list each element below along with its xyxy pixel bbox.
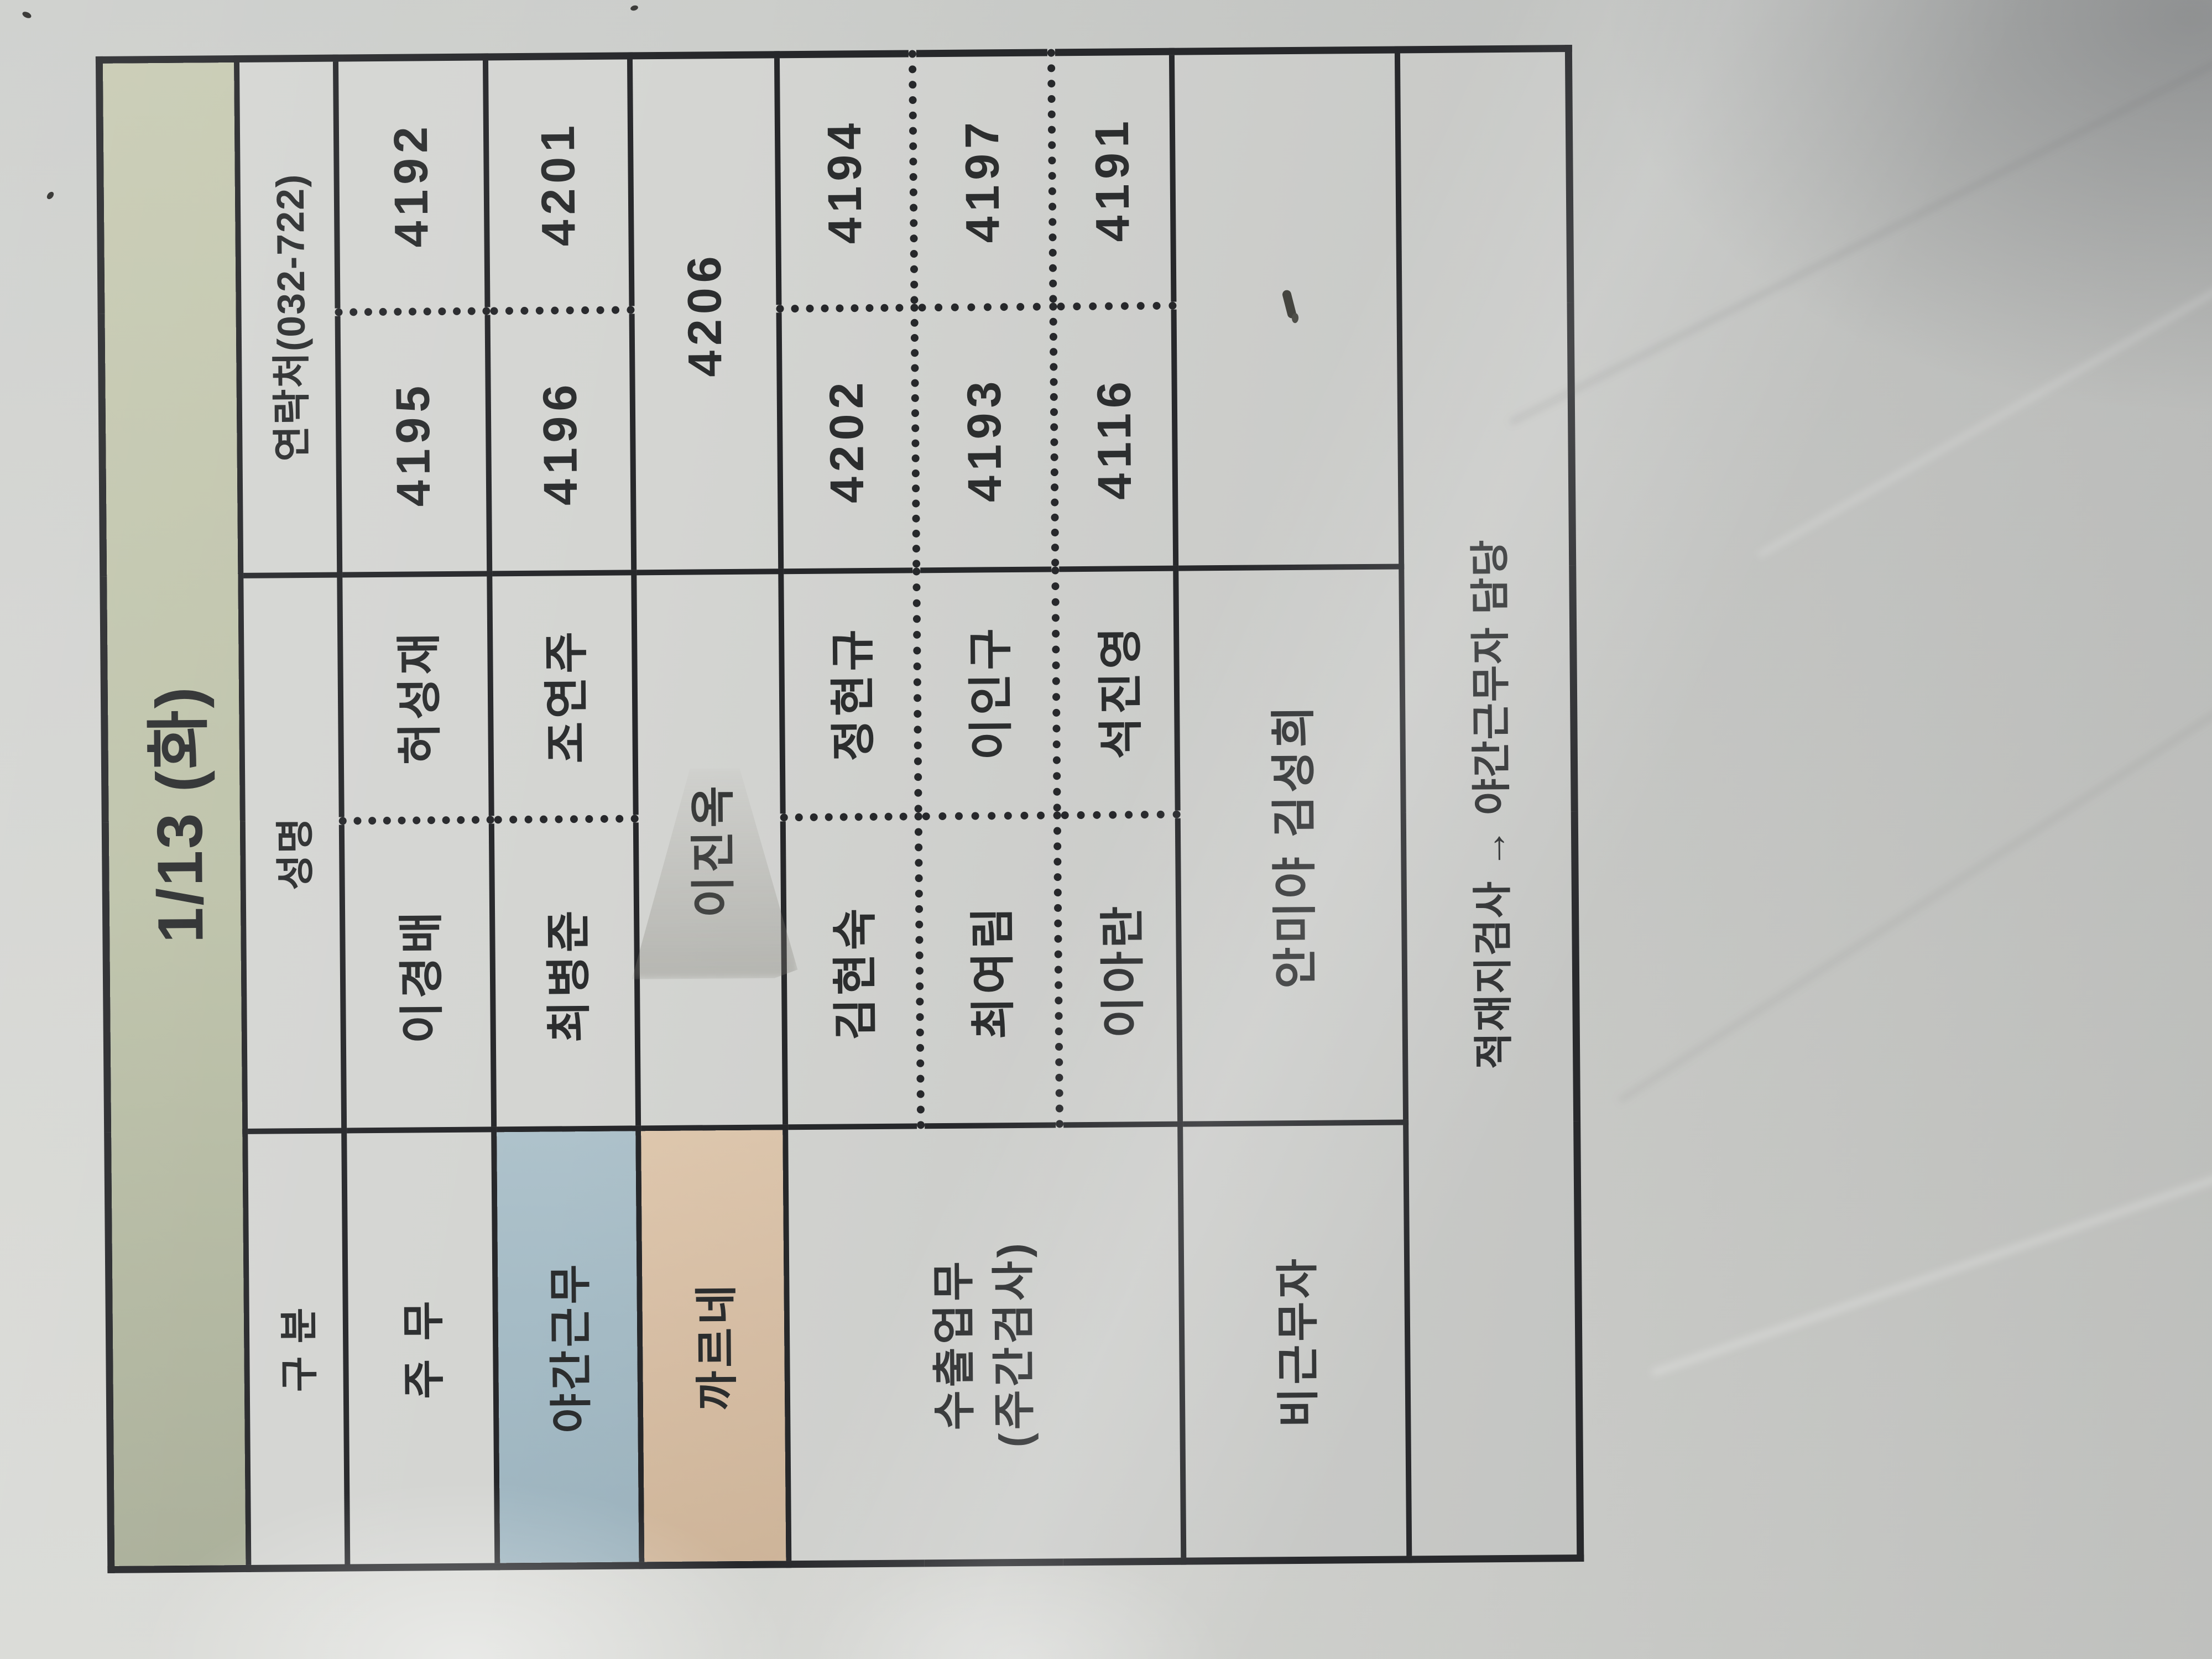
- jumu-num1: 4195: [337, 311, 489, 575]
- off-duty-label: 비근무자: [1180, 1123, 1409, 1561]
- paper-crease: [1619, 617, 2212, 1103]
- date-title-cell: 1/13 (화): [99, 59, 248, 1570]
- export3-name1: 이아란: [1057, 815, 1180, 1125]
- night-name2: 조연주: [489, 573, 635, 820]
- export1-name1: 김현숙: [782, 817, 920, 1128]
- export1-num2: 4194: [776, 54, 914, 309]
- row-note: 적재지검사 → 야간근무자 담당: [1397, 49, 1580, 1559]
- date-title: 1/13 (화): [143, 685, 217, 943]
- export2-num2: 4197: [912, 53, 1053, 308]
- export3-num1: 4116: [1053, 306, 1176, 570]
- roster-photo: 1/13 (화) 구 분 성명 연락처(032-722) 주 무 이경배 허성재…: [0, 0, 2212, 1659]
- duty-roster-table: 1/13 (화) 구 분 성명 연락처(032-722) 주 무 이경배 허성재…: [96, 45, 1584, 1573]
- paper-crease-highlight: [1757, 222, 2212, 557]
- colhead-contact: 연락처(032-722): [236, 58, 339, 576]
- row-carnet: 까르네 이진옥 4206: [629, 55, 788, 1566]
- rotated-sheet: 1/13 (화) 구 분 성명 연락처(032-722) 주 무 이경배 허성재…: [96, 52, 1577, 1573]
- row-night-duty: 야간근무 최병준 조연주 4196 4201: [485, 56, 641, 1567]
- row-export-1: 수출업무 (주간검사) 김현숙 정현규 4202 4194: [776, 54, 924, 1564]
- note-text: 적재지검사 → 야간근무자 담당: [1468, 539, 1517, 1070]
- colhead-name: 성명: [241, 575, 344, 1131]
- colhead-category: 구 분: [245, 1131, 347, 1568]
- carnet-num: 4206: [629, 55, 780, 573]
- night-duty-label: 야간근무: [494, 1129, 641, 1567]
- paper-speck: [45, 191, 55, 201]
- carnet-name: 이진옥: [634, 572, 785, 1129]
- carnet-label: 까르네: [638, 1128, 789, 1566]
- export-label: 수출업무 (주간검사): [785, 1124, 1183, 1564]
- jumu-name1: 이경배: [341, 820, 493, 1131]
- paper-speck: [630, 4, 639, 11]
- jumu-num2: 4192: [335, 57, 487, 312]
- row-jumu: 주 무 이경배 허성재 4195 4192: [335, 57, 497, 1568]
- row-off-duty: 비근무자 안미야 김성희: [1171, 50, 1408, 1561]
- note-cell: 적재지검사 → 야간근무자 담당: [1397, 49, 1580, 1559]
- export2-name2: 이인구: [916, 570, 1057, 817]
- title-row: 1/13 (화): [99, 59, 248, 1570]
- export2-num1: 4193: [914, 307, 1055, 571]
- export1-name2: 정현규: [781, 571, 918, 818]
- jumu-label: 주 무: [344, 1130, 497, 1568]
- paper-speck: [22, 11, 33, 19]
- off-duty-names: 안미야 김성희: [1176, 567, 1406, 1124]
- export1-num1: 4202: [779, 308, 916, 572]
- night-num1: 4196: [487, 310, 634, 574]
- paper-crease: [1510, 44, 2212, 424]
- off-duty-contact-empty: [1171, 50, 1401, 568]
- column-header-row: 구 분 성명 연락처(032-722): [236, 58, 347, 1568]
- export2-name1: 최여림: [918, 816, 1059, 1126]
- pen-mark: [1281, 289, 1297, 319]
- export3-name2: 석진영: [1055, 568, 1177, 816]
- night-name1: 최병준: [491, 819, 638, 1130]
- export3-num2: 4191: [1051, 51, 1173, 307]
- paper-crease-highlight: [1652, 1118, 2212, 1375]
- jumu-name2: 허성재: [340, 574, 491, 821]
- night-num2: 4201: [485, 56, 632, 311]
